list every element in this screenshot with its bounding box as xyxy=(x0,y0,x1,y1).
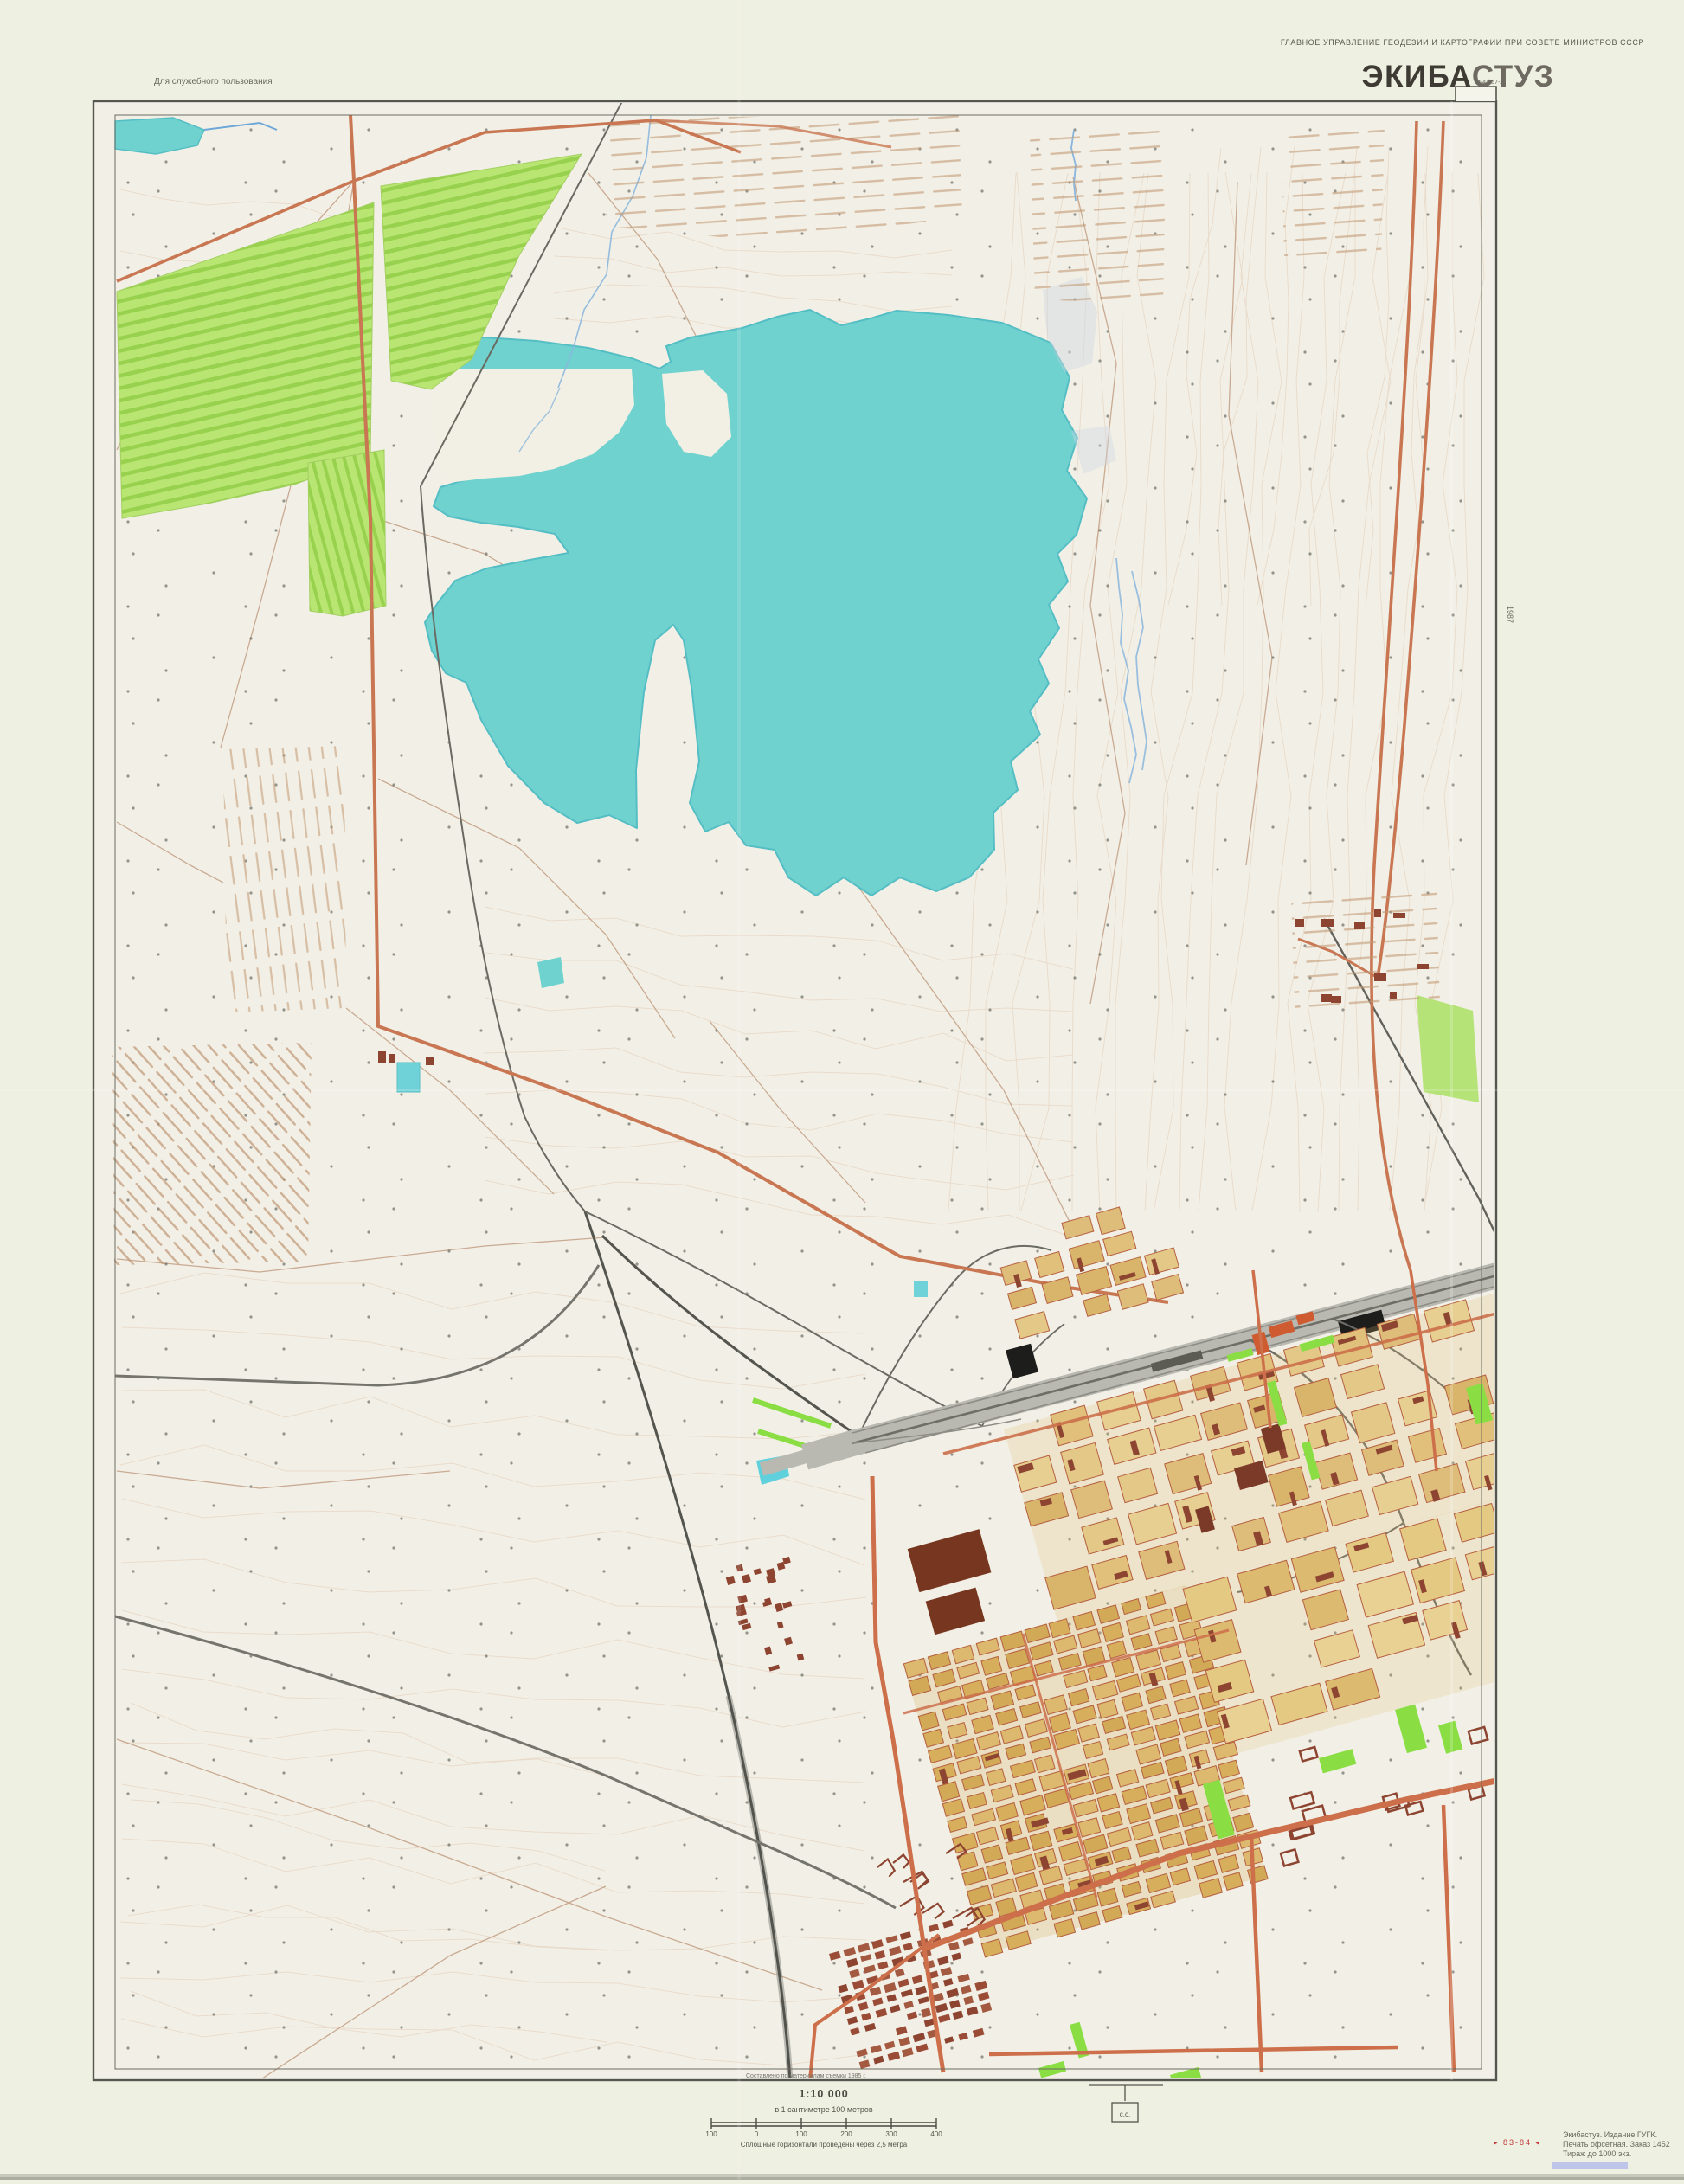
svg-text:М-44-57-А: М-44-57-А xyxy=(1475,80,1504,86)
svg-text:▸ 83-84 ◂: ▸ 83-84 ◂ xyxy=(1494,2138,1541,2147)
svg-text:0: 0 xyxy=(755,2130,759,2138)
svg-text:Экибастуз. Издание ГУГК.: Экибастуз. Издание ГУГК. xyxy=(1563,2130,1657,2139)
svg-text:400: 400 xyxy=(930,2130,942,2138)
svg-text:1:10 000: 1:10 000 xyxy=(799,2088,848,2100)
svg-text:Печать офсетная. Заказ 1452: Печать офсетная. Заказ 1452 xyxy=(1563,2140,1670,2149)
svg-text:Для служебного пользования: Для служебного пользования xyxy=(154,76,273,87)
svg-text:100: 100 xyxy=(705,2130,717,2138)
svg-text:200: 200 xyxy=(840,2130,852,2138)
svg-text:ГЛАВНОЕ УПРАВЛЕНИЕ ГЕОДЕЗИИ И: ГЛАВНОЕ УПРАВЛЕНИЕ ГЕОДЕЗИИ И КАРТОГРАФИ… xyxy=(1281,38,1644,47)
svg-text:в 1 сантиметре 100 метров: в 1 сантиметре 100 метров xyxy=(775,2105,872,2114)
svg-text:с.с.: с.с. xyxy=(1120,2110,1130,2118)
svg-text:Сплошные горизонтали проведены: Сплошные горизонтали проведены через 2,5… xyxy=(741,2141,908,2149)
svg-text:1987: 1987 xyxy=(1506,606,1514,623)
svg-text:300: 300 xyxy=(885,2130,897,2138)
svg-text:100: 100 xyxy=(795,2130,807,2138)
svg-text:Составлено по материалам съемк: Составлено по материалам съемки 1985 г. xyxy=(746,2073,866,2079)
svg-text:Тираж до 1000 экз.: Тираж до 1000 экз. xyxy=(1563,2149,1631,2158)
svg-text:ЭКИБАСТУЗ: ЭКИБАСТУЗ xyxy=(1362,60,1555,93)
